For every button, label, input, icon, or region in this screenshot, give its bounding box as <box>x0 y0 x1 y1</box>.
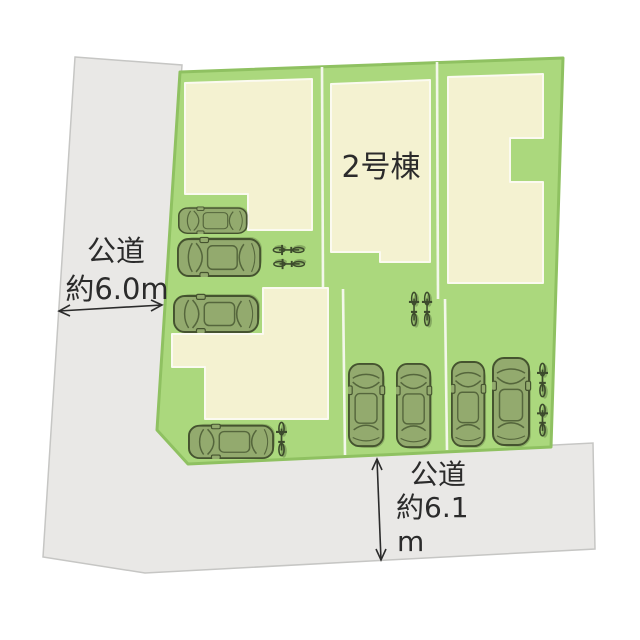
car-icon <box>491 358 531 447</box>
left-road-width-label: 約6.0m <box>65 272 168 306</box>
car-icon <box>395 364 432 449</box>
unit-2-label: 2号棟 <box>341 150 420 185</box>
car-icon <box>174 294 260 334</box>
bottom-road-name-label: 公道 <box>410 458 466 491</box>
bottom-road-width-label: 約6.1 <box>396 491 469 524</box>
car-icon <box>189 424 275 460</box>
site-plan-canvas: 公道 約6.0m 2号棟 公道 約6.1 m <box>0 0 640 640</box>
car-icon <box>347 364 385 448</box>
car-icon <box>178 237 262 278</box>
left-road-name-label: 公道 <box>87 234 145 268</box>
car-icon <box>179 207 248 235</box>
bottom-road-width-unit-label: m <box>397 525 424 558</box>
site-plan: 公道 約6.0m 2号棟 公道 約6.1 m <box>0 0 640 640</box>
car-icon <box>450 362 486 448</box>
